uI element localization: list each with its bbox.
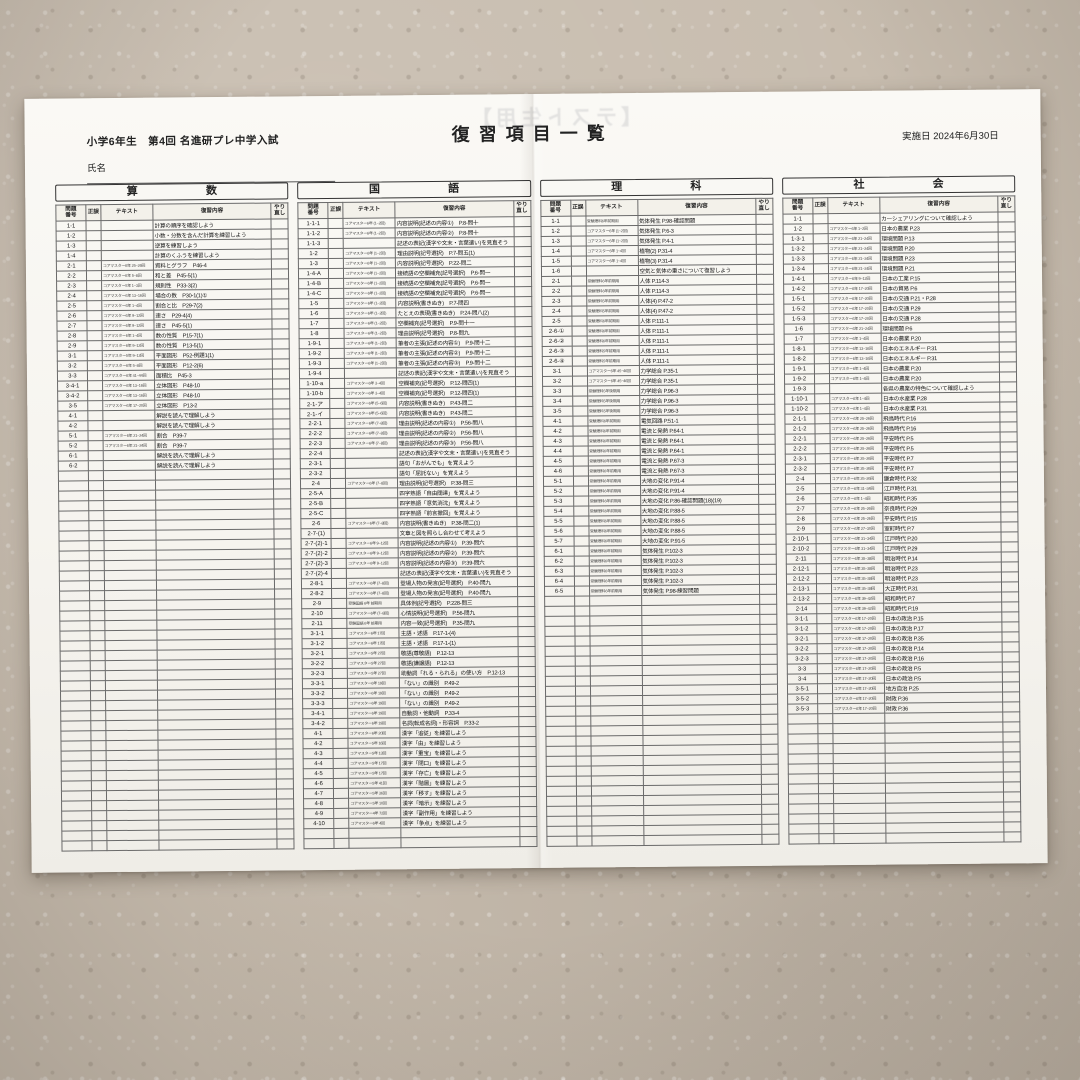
cell-correct [816,514,831,524]
cell-correct [818,774,833,784]
cell-correct [817,694,832,704]
cell-correct [815,414,830,424]
cell-textbook [590,685,642,695]
cell-problem-no: 3-3 [57,371,87,381]
cell-correct [571,316,586,326]
cell-redo [757,324,774,334]
cell-textbook: コアマスター6年 19回 [348,708,400,718]
cell-correct [331,548,346,558]
cell-redo [1000,462,1017,472]
cell-redo [273,439,290,449]
cell-redo [517,617,534,627]
cell-problem-no: 1-4-B [299,278,329,288]
cell-textbook: コアマスター6年 9~12回 [102,340,154,350]
cell-problem-no [61,701,91,711]
cell-problem-no [61,781,91,791]
cell-textbook [103,460,155,470]
cell-correct [576,836,591,846]
cell-problem-no: 2-7-(2)-4 [302,568,332,578]
cell-textbook [107,820,159,830]
cell-redo [999,302,1016,312]
cell-correct [813,244,828,254]
cell-textbook: コアマスター6年 35~38回 [831,583,883,593]
cell-correct [87,341,102,351]
cell-correct [90,681,105,691]
cell-problem-no: 2-7 [785,504,815,514]
cell-textbook: 受験理科6年前期用 [589,565,641,575]
cell-problem-no: 2-12-1 [786,564,816,574]
cell-textbook [833,813,885,823]
cell-textbook: 受験理科6年前期用 [589,535,641,545]
cell-problem-no: 1-10-2 [785,404,815,414]
cell-correct [332,608,347,618]
cell-correct [571,236,586,246]
cell-problem-no: 4-5 [543,456,573,466]
cell-redo [761,734,778,744]
cell-textbook: コアマスター6年 21~24回 [828,253,880,263]
cell-correct [576,756,591,766]
cell-textbook [104,550,156,560]
cell-textbook: コアマスター5年 1~3回 [102,280,154,290]
cell-correct [818,744,833,754]
cell-textbook: コアマスター6年 27~30回 [831,523,883,533]
cell-redo [760,684,777,694]
cell-textbook: コアマスター6年 39~42回 [831,603,883,613]
cell-problem-no [546,786,576,796]
cell-textbook [589,635,641,645]
cell-correct [87,301,102,311]
cell-problem-no: 1-8-2 [784,354,814,364]
cell-problem-no [546,816,576,826]
cell-problem-no: 2-3 [541,296,571,306]
cell-textbook [590,645,642,655]
cell-textbook: コアマスター6年 5~8回 [101,270,153,280]
cell-correct [91,771,106,781]
cell-problem-no [59,571,89,581]
cell-correct [90,661,105,671]
cell-correct [816,584,831,594]
cell-problem-no: 1-4-A [299,268,329,278]
cell-correct [576,786,591,796]
cell-textbook: コアマスター6年 (1~2回) [344,248,396,258]
cell-redo [759,584,776,594]
empty-row [789,832,1021,844]
cell-correct [816,564,831,574]
cell-textbook [101,220,153,230]
cell-textbook: 受験理科6年前期用 [589,585,641,595]
cell-problem-no: 4-4 [543,446,573,456]
cell-correct [817,624,832,634]
cell-problem-no: 2-5-C [301,508,331,518]
cell-correct [329,308,344,318]
cell-correct [88,381,103,391]
cell-correct [88,421,103,431]
cell-redo [272,349,289,359]
cell-problem-no: 1-2 [541,226,571,236]
cell-redo [273,449,290,459]
cell-redo [756,264,773,274]
cell-correct [86,241,101,251]
cell-problem-no: 2-3 [57,281,87,291]
cell-redo [1002,652,1019,662]
cell-correct [575,656,590,666]
cell-redo [516,507,533,517]
cell-textbook: コアマスター6年 (1~2回) [344,328,396,338]
cell-correct [571,306,586,316]
cell-textbook [346,528,398,538]
cell-problem-no: 2-13-1 [786,584,816,594]
cell-correct [817,644,832,654]
cell-textbook [107,830,159,840]
cell-redo [518,677,535,687]
cell-redo [1001,492,1018,502]
cell-textbook: コアマスター6年 9~12回 [102,310,154,320]
cell-redo [1003,782,1020,792]
cell-redo [999,372,1016,382]
cell-textbook: コアマスター5年 41回 [349,778,401,788]
cell-textbook: コアマスター5年 36回 [349,788,401,798]
cell-correct [815,474,830,484]
cell-correct [88,411,103,421]
cell-correct [330,378,345,388]
cell-correct [332,578,347,588]
cell-correct [571,226,586,236]
cell-correct [331,498,346,508]
cell-problem-no: 2-5-B [301,498,331,508]
cell-textbook: コアマスター4年 72回 [349,808,401,818]
cell-problem-no: 2-7-(2)-1 [301,538,331,548]
cell-textbook: 受験理科6年前期用 [588,516,640,526]
cell-correct [815,484,830,494]
cell-redo [759,524,776,534]
cell-problem-no: 1-5 [541,256,571,266]
cell-redo [273,359,290,369]
cell-correct [573,436,588,446]
cell-redo [758,454,775,464]
cell-redo [756,274,773,284]
cell-textbook: 受験理科6年前期用 [588,525,640,535]
cell-problem-no [544,616,574,626]
cell-redo [514,257,531,267]
cell-correct [575,686,590,696]
cell-textbook [346,508,398,518]
cell-textbook: コアマスター6年 9~12回 [346,558,398,568]
cell-redo [519,807,536,817]
cell-problem-no [58,481,88,491]
cell-textbook: 受験理科5年前期用 [586,306,638,316]
cell-textbook [589,595,641,605]
cell-correct [817,684,832,694]
cell-problem-no [60,651,90,661]
cell-problem-no [59,561,89,571]
cell-textbook [104,520,156,530]
cell-redo [274,459,291,469]
cell-textbook: コアマスター5年 17回 [348,758,400,768]
cell-problem-no: 6-1 [58,451,88,461]
cell-problem-no: 3-5-1 [787,684,817,694]
cell-correct [331,538,346,548]
cell-problem-no [544,626,574,636]
cell-textbook [347,568,399,578]
cell-correct [331,558,346,568]
cell-correct [92,811,107,821]
cell-problem-no [789,834,819,844]
cell-correct [574,556,589,566]
cell-redo [276,689,293,699]
cell-correct [334,808,349,818]
page-title: 復習項目一覧 [55,115,1011,150]
cell-textbook [591,815,643,825]
cell-problem-no: 2-2 [541,286,571,296]
cell-redo [1000,402,1017,412]
cell-correct [91,741,106,751]
cell-textbook [106,740,158,750]
cell-textbook: 受験理科5年後期用 [587,396,639,406]
cell-redo [519,747,536,757]
cell-redo [999,342,1016,352]
cell-problem-no: 4-9 [304,808,334,818]
cell-redo [1004,792,1021,802]
cell-correct [333,708,348,718]
subject-section-3: 社 会問題番号正誤テキスト復習内容やり直し1-1カーシェアリングについて確認しよ… [782,175,1022,844]
col-review-content: 復習内容 [637,198,755,215]
cell-textbook: 受験理科6年前期用 [589,555,641,565]
cell-redo [1000,392,1017,402]
cell-redo [1000,422,1017,432]
cell-textbook: 受験理科5年後期用 [587,386,639,396]
cell-correct [816,544,831,554]
cell-redo [516,487,533,497]
cell-problem-no [546,756,576,766]
cell-redo [513,217,530,227]
cell-textbook: コアマスター6年 25~26回 [830,503,882,513]
cell-correct [329,338,344,348]
cell-problem-no: 4-6 [543,466,573,476]
cell-textbook [103,450,155,460]
cell-redo [276,739,293,749]
cell-redo [758,464,775,474]
cell-redo [1004,832,1021,842]
exam-date: 実施日 2024年6月30日 [902,128,999,143]
cell-textbook: 受験理科6年前期用 [588,506,640,516]
cell-problem-no [62,841,92,851]
cell-correct [86,251,101,261]
cell-correct [89,531,104,541]
cell-textbook: コアマスター6年 1~4回 [829,333,881,343]
cell-problem-no: 3-2-1 [787,634,817,644]
cell-problem-no [545,686,575,696]
cell-correct [88,441,103,451]
cell-textbook: コアマスター6年 (1~2回) [344,318,396,328]
cell-problem-no [60,641,90,651]
cell-correct [330,408,345,418]
cell-textbook [346,468,398,478]
cell-textbook [104,580,156,590]
cell-textbook [833,803,885,813]
cell-redo [276,729,293,739]
cell-problem-no [62,801,92,811]
cell-problem-no [546,766,576,776]
cell-correct [88,461,103,471]
cell-redo [998,222,1015,232]
cell-textbook: コアマスター6年 17~20回 [832,653,884,663]
cell-correct [816,554,831,564]
cell-problem-no: 1-3-1 [783,234,813,244]
cell-problem-no: 4-3 [303,748,333,758]
cell-redo [1004,822,1021,832]
cell-redo [274,549,291,559]
cell-redo [275,599,292,609]
cell-correct [573,526,588,536]
cell-textbook: コアマスター6年 17~20回 [828,283,880,293]
cell-correct [89,551,104,561]
cell-textbook: コアマスター6年 1~4回 [830,493,882,503]
cell-correct [571,256,586,266]
cell-correct [575,706,590,716]
cell-textbook [107,810,159,820]
cell-correct [334,828,349,838]
cell-correct [87,291,102,301]
cell-redo [273,369,290,379]
cell-correct [330,358,345,368]
cell-redo [999,272,1016,282]
cell-problem-no: 3-3-2 [303,688,333,698]
cell-redo [518,697,535,707]
cell-textbook: コアマスター6年 25~26回 [830,423,882,433]
cell-problem-no [545,726,575,736]
cell-textbook [586,266,638,276]
col-redo: やり直し [756,198,773,214]
cell-problem-no [545,666,575,676]
cell-redo [998,252,1015,262]
cell-textbook: コアマスター6年 (1~2回) [344,268,396,278]
cell-redo [757,394,774,404]
cell-textbook [105,590,157,600]
cell-correct [574,536,589,546]
cell-problem-no [60,631,90,641]
cell-redo [518,687,535,697]
cell-textbook: コアマスター6年 (7~8回) [347,588,399,598]
cell-redo [760,664,777,674]
cell-textbook: コアマスター6年 17~20回 [832,613,884,623]
cell-problem-no: 2-6-④ [542,356,572,366]
cell-redo [1002,672,1019,682]
cell-problem-no: 1-9-1 [784,364,814,374]
cell-textbook [346,458,398,468]
cell-correct [819,824,834,834]
cell-textbook: コアマスター6年 31~34回 [831,533,883,543]
cell-redo [519,827,536,837]
cell-problem-no: 6-4 [544,576,574,586]
cell-redo [760,674,777,684]
cell-problem-no [788,814,818,824]
empty-row [304,837,536,849]
cell-redo [999,332,1016,342]
cell-textbook [105,620,157,630]
cell-textbook [104,560,156,570]
cell-problem-no: 1-4 [541,246,571,256]
cell-problem-no: 4-10 [304,818,334,828]
cell-textbook [834,833,886,843]
cell-problem-no: 5-1 [543,476,573,486]
cell-redo [515,327,532,337]
cell-correct [90,601,105,611]
cell-problem-no [546,746,576,756]
cell-redo [276,699,293,709]
cell-correct [87,331,102,341]
cell-textbook [591,795,643,805]
cell-problem-no: 3-4-1 [303,708,333,718]
cell-correct [815,454,830,464]
cell-redo [756,234,773,244]
cell-textbook: 受験理科6年前期用 [587,336,639,346]
cell-problem-no [60,621,90,631]
cell-textbook [104,530,156,540]
cell-correct [571,286,586,296]
cell-correct [818,814,833,824]
cell-redo [517,627,534,637]
cell-redo [271,219,288,229]
review-table: 問題番号正誤テキスト復習内容やり直し1-1計算の順序を確認しよう1-2小数・分数… [55,202,294,851]
cell-correct [813,264,828,274]
cell-textbook [833,733,885,743]
cell-redo [273,379,290,389]
cell-redo [1002,622,1019,632]
cell-redo [761,724,778,734]
cell-correct [813,224,828,234]
cell-redo [275,619,292,629]
cell-redo [272,249,289,259]
cell-redo [274,539,291,549]
cell-problem-no: 1-3 [541,236,571,246]
section-title: 算 数 [55,182,288,201]
cell-textbook: コアマスター6年 19回 [348,698,400,708]
cell-redo [1001,482,1018,492]
cell-correct [91,701,106,711]
cell-textbook: コアマスター6年 1~4回 [586,256,638,266]
cell-correct [329,328,344,338]
cell-redo [515,427,532,437]
cell-textbook [591,755,643,765]
cell-correct [332,648,347,658]
cell-textbook: コアマスター6年 25~26回 [830,453,882,463]
cell-textbook [346,488,398,498]
cell-problem-no [61,741,91,751]
cell-correct [576,776,591,786]
cell-correct [814,374,829,384]
cell-textbook [103,410,155,420]
cell-textbook: コアマスター6年 25~26回 [101,260,153,270]
cell-correct [334,778,349,788]
cell-problem-no [788,754,818,764]
cell-correct [813,274,828,284]
cell-problem-no [59,531,89,541]
cell-problem-no: 2-8-2 [302,588,332,598]
cell-redo [1003,772,1020,782]
cell-problem-no [60,601,90,611]
cell-problem-no [788,774,818,784]
cell-redo [518,727,535,737]
cell-correct [92,801,107,811]
cell-redo [1003,762,1020,772]
cell-redo [275,649,292,659]
cell-redo [758,414,775,424]
cell-redo [519,797,536,807]
cell-problem-no: 6-5 [544,586,574,596]
cell-review-content [886,832,1004,843]
cell-problem-no: 2-3-2 [301,468,331,478]
cell-textbook: コアマスター6年 1~4回 [830,403,882,413]
